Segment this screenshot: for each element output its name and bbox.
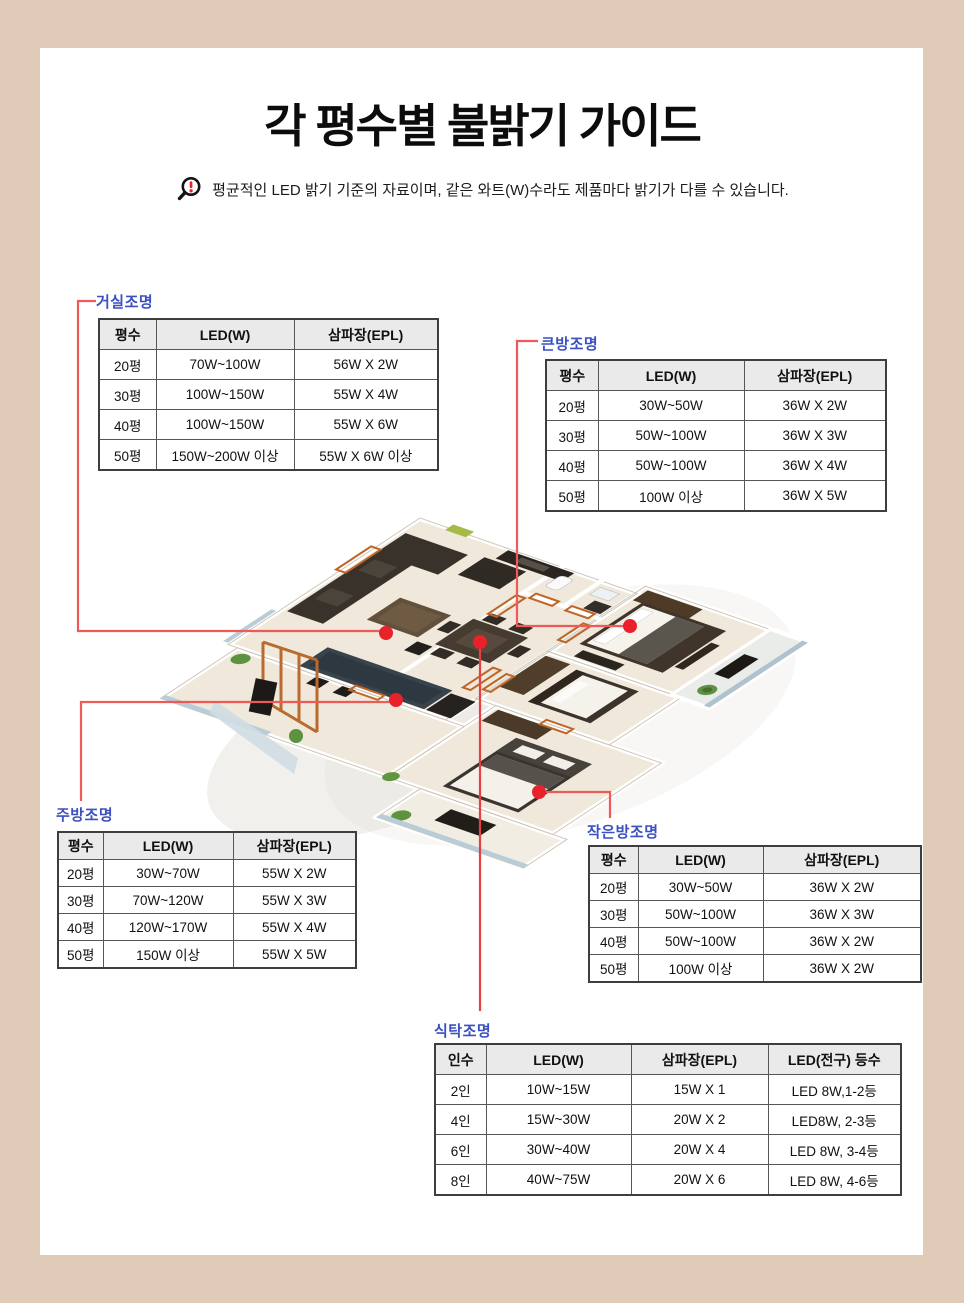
cell: 55W X 5W [233,941,356,969]
small-room-marker [532,785,546,799]
header-cell: LED(W) [103,832,233,860]
table-row: 30평 50W~100W 36W X 3W [546,421,886,451]
dining-marker [473,635,487,649]
cell: 30평 [99,380,156,410]
cell: 55W X 3W [233,887,356,914]
table-header-row: 평수 LED(W) 삼파장(EPL) [99,319,438,350]
cell: 6인 [435,1135,486,1165]
cell: 8인 [435,1165,486,1196]
cell: 56W X 2W [294,350,438,380]
cell: 40평 [58,914,103,941]
floor-plan-building [101,509,846,868]
table-row: 50평 150W~200W 이상 55W X 6W 이상 [99,440,438,471]
table-row: 40평 50W~100W 36W X 2W [589,928,921,955]
cell: 100W~150W [156,380,294,410]
west-balcony-plant-icon [289,729,303,743]
small-room-table: 평수 LED(W) 삼파장(EPL) 20평 30W~50W 36W X 2W … [588,845,922,983]
cell: 30평 [546,421,598,451]
dining-table: 인수 LED(W) 삼파장(EPL) LED(전구) 등수 2인 10W~15W… [434,1043,902,1196]
header-cell: 평수 [99,319,156,350]
cell: 15W X 1 [631,1075,768,1105]
header-cell: 삼파장(EPL) [744,360,886,391]
table-header-row: 인수 LED(W) 삼파장(EPL) LED(전구) 등수 [435,1044,901,1075]
cell: 40평 [589,928,638,955]
header-cell: LED(W) [598,360,744,391]
cell: 50평 [99,440,156,471]
header-cell: LED(W) [638,846,763,874]
cell: 100W 이상 [638,955,763,983]
table-row: 50평 100W 이상 36W X 5W [546,481,886,512]
cell: 2인 [435,1075,486,1105]
table-row: 30평 70W~120W 55W X 3W [58,887,356,914]
table-row: 40평 120W~170W 55W X 4W [58,914,356,941]
cell: 15W~30W [486,1105,631,1135]
cell: 36W X 3W [763,901,921,928]
cell: 20평 [546,391,598,421]
cell: 36W X 2W [744,391,886,421]
header-cell: LED(W) [486,1044,631,1075]
dining-label: 식탁조명 [434,1020,491,1041]
notice-text: 평균적인 LED 밝기 기준의 자료이며, 같은 와트(W)수라도 제품마다 밝… [212,179,789,200]
cell: 50W~100W [598,451,744,481]
cell: 40평 [99,410,156,440]
table-header-row: 평수 LED(W) 삼파장(EPL) [589,846,921,874]
table-row: 30평 50W~100W 36W X 3W [589,901,921,928]
infographic-canvas: 각 평수별 불밝기 가이드 평균적인 LED 밝기 기준의 자료이며, 같은 와… [0,0,964,1303]
cell: 55W X 6W [294,410,438,440]
kitchen-label: 주방조명 [56,804,113,825]
cell: 36W X 2W [763,928,921,955]
cell: 20평 [99,350,156,380]
cell: 55W X 4W [233,914,356,941]
cell: 4인 [435,1105,486,1135]
cell: 150W 이상 [103,941,233,969]
cell: 50W~100W [638,901,763,928]
table-row: 4인 15W~30W 20W X 2 LED8W, 2-3등 [435,1105,901,1135]
notice: 평균적인 LED 밝기 기준의 자료이며, 같은 와트(W)수라도 제품마다 밝… [0,175,964,203]
kitchen-table: 평수 LED(W) 삼파장(EPL) 20평 30W~70W 55W X 2W … [57,831,357,969]
kitchen-marker [389,693,403,707]
cell: 30W~50W [638,874,763,901]
table-header-row: 평수 LED(W) 삼파장(EPL) [58,832,356,860]
cell: 70W~120W [103,887,233,914]
cell: 20W X 2 [631,1105,768,1135]
header-cell: LED(전구) 등수 [768,1044,901,1075]
table-row: 6인 30W~40W 20W X 4 LED 8W, 3-4등 [435,1135,901,1165]
cell: LED 8W, 4-6등 [768,1165,901,1196]
cell: 30W~40W [486,1135,631,1165]
header-cell: 인수 [435,1044,486,1075]
cell: 36W X 3W [744,421,886,451]
table-row: 50평 100W 이상 36W X 2W [589,955,921,983]
header-cell: 평수 [589,846,638,874]
header-cell: 삼파장(EPL) [294,319,438,350]
cell: LED8W, 2-3등 [768,1105,901,1135]
magnifier-alert-icon [175,175,203,203]
small-room-label: 작은방조명 [587,821,659,842]
header-cell: 삼파장(EPL) [763,846,921,874]
table-row: 20평 30W~50W 36W X 2W [546,391,886,421]
table-row: 20평 30W~50W 36W X 2W [589,874,921,901]
header-cell: LED(W) [156,319,294,350]
header-cell: 평수 [58,832,103,860]
cell: 30W~50W [598,391,744,421]
table-row: 50평 150W 이상 55W X 5W [58,941,356,969]
cell: 55W X 2W [233,860,356,887]
cell: 20평 [589,874,638,901]
table-row: 30평 100W~150W 55W X 4W [99,380,438,410]
header-cell: 삼파장(EPL) [233,832,356,860]
cell: 36W X 2W [763,874,921,901]
living-room-table: 평수 LED(W) 삼파장(EPL) 20평 70W~100W 56W X 2W… [98,318,439,471]
header-cell: 삼파장(EPL) [631,1044,768,1075]
table-row: 20평 70W~100W 56W X 2W [99,350,438,380]
big-room-table: 평수 LED(W) 삼파장(EPL) 20평 30W~50W 36W X 2W … [545,359,887,512]
cell: LED 8W,1-2등 [768,1075,901,1105]
cell: 50W~100W [598,421,744,451]
living-room-marker [379,626,393,640]
page-title: 각 평수별 불밝기 가이드 [0,90,964,156]
cell: 55W X 4W [294,380,438,410]
cell: 40W~75W [486,1165,631,1196]
big-room-label: 큰방조명 [541,333,598,354]
cell: 30평 [589,901,638,928]
cell: 36W X 4W [744,451,886,481]
table-row: 8인 40W~75W 20W X 6 LED 8W, 4-6등 [435,1165,901,1196]
cell: 55W X 6W 이상 [294,440,438,471]
cell: 50평 [58,941,103,969]
table-row: 40평 100W~150W 55W X 6W [99,410,438,440]
cell: 20W X 6 [631,1165,768,1196]
cell: LED 8W, 3-4등 [768,1135,901,1165]
big-room-marker [623,619,637,633]
cell: 100W~150W [156,410,294,440]
cell: 70W~100W [156,350,294,380]
cell: 150W~200W 이상 [156,440,294,471]
table-header-row: 평수 LED(W) 삼파장(EPL) [546,360,886,391]
cell: 30평 [58,887,103,914]
header-cell: 평수 [546,360,598,391]
cell: 120W~170W [103,914,233,941]
cell: 30W~70W [103,860,233,887]
table-row: 2인 10W~15W 15W X 1 LED 8W,1-2등 [435,1075,901,1105]
living-room-label: 거실조명 [96,291,153,312]
cell: 10W~15W [486,1075,631,1105]
table-row: 20평 30W~70W 55W X 2W [58,860,356,887]
cell: 36W X 2W [763,955,921,983]
cell: 36W X 5W [744,481,886,512]
cell: 50평 [546,481,598,512]
cell: 50평 [589,955,638,983]
cell: 100W 이상 [598,481,744,512]
table-row: 40평 50W~100W 36W X 4W [546,451,886,481]
cell: 20W X 4 [631,1135,768,1165]
cell: 40평 [546,451,598,481]
cell: 20평 [58,860,103,887]
cell: 50W~100W [638,928,763,955]
